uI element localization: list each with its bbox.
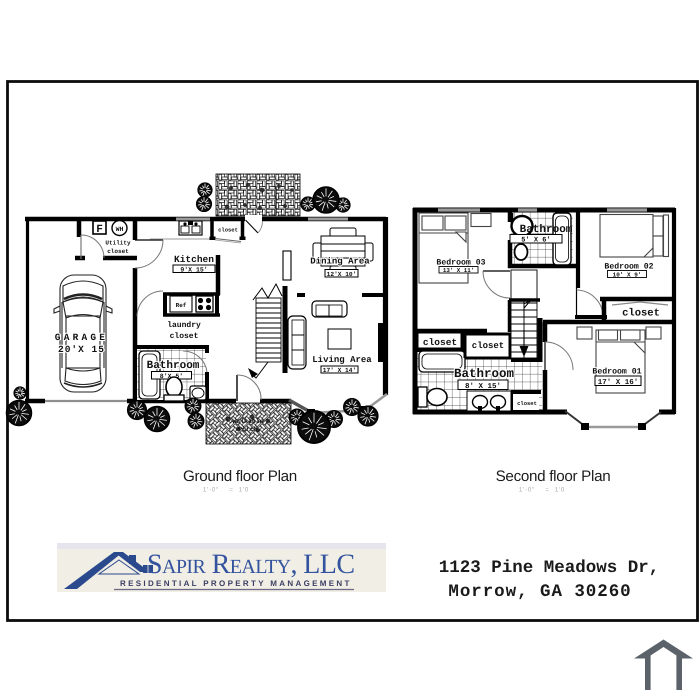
svg-text:Kitchen: Kitchen xyxy=(174,254,214,265)
svg-text:Sapir Realty, LLC: Sapir Realty, LLC xyxy=(147,549,355,580)
svg-text:closet: closet xyxy=(107,248,129,255)
svg-text:GARAGE: GARAGE xyxy=(55,332,108,343)
svg-text:1123 Pine Meadows Dr,: 1123 Pine Meadows Dr, xyxy=(439,558,660,578)
svg-text:13' X 11': 13' X 11' xyxy=(443,267,474,274)
svg-text:closet: closet xyxy=(517,400,537,407)
svg-text:WH: WH xyxy=(116,226,124,233)
svg-text:10' X 9': 10' X 9' xyxy=(613,272,642,279)
svg-text:1'-0" = 1'0: 1'-0" = 1'0 xyxy=(203,487,249,494)
svg-text:5' X 6': 5' X 6' xyxy=(521,236,550,245)
svg-text:closet: closet xyxy=(622,308,660,320)
svg-text:RESIDENTIAL PROPERTY MANAGEMEN: RESIDENTIAL PROPERTY MANAGEMENT xyxy=(120,579,352,588)
svg-text:Bathroom: Bathroom xyxy=(147,360,200,372)
svg-text:Bathroom: Bathroom xyxy=(454,367,515,381)
svg-text:Walkable: Walkable xyxy=(232,418,263,425)
svg-text:12'X 10': 12'X 10' xyxy=(327,271,357,278)
svg-text:F: F xyxy=(96,224,103,236)
svg-text:20'X 15: 20'X 15 xyxy=(58,344,105,355)
svg-text:1'-0" = 1'0: 1'-0" = 1'0 xyxy=(519,487,565,494)
svg-text:9'X 15': 9'X 15' xyxy=(180,267,207,274)
svg-text:Bedroom 01: Bedroom 01 xyxy=(592,368,641,377)
svg-text:closet: closet xyxy=(170,332,199,341)
svg-text:Porch: Porch xyxy=(238,426,258,433)
svg-text:closet: closet xyxy=(423,337,457,348)
svg-text:8' X 15': 8' X 15' xyxy=(465,382,501,391)
svg-text:17' X 14': 17' X 14' xyxy=(323,367,356,374)
svg-text:closet: closet xyxy=(472,341,504,351)
svg-text:Morrow, GA 30260: Morrow, GA 30260 xyxy=(448,582,631,602)
svg-text:17' X 16': 17' X 16' xyxy=(598,378,639,387)
svg-text:laundry: laundry xyxy=(167,321,201,330)
svg-text:closet: closet xyxy=(218,227,238,234)
svg-text:Utility: Utility xyxy=(105,240,131,247)
svg-text:Ground floor Plan: Ground floor Plan xyxy=(183,468,297,485)
svg-text:Dining Area: Dining Area xyxy=(310,257,370,267)
svg-text:Second floor Plan: Second floor Plan xyxy=(496,468,611,485)
svg-text:Living Area: Living Area xyxy=(312,355,372,365)
svg-text:Ref: Ref xyxy=(176,302,187,309)
